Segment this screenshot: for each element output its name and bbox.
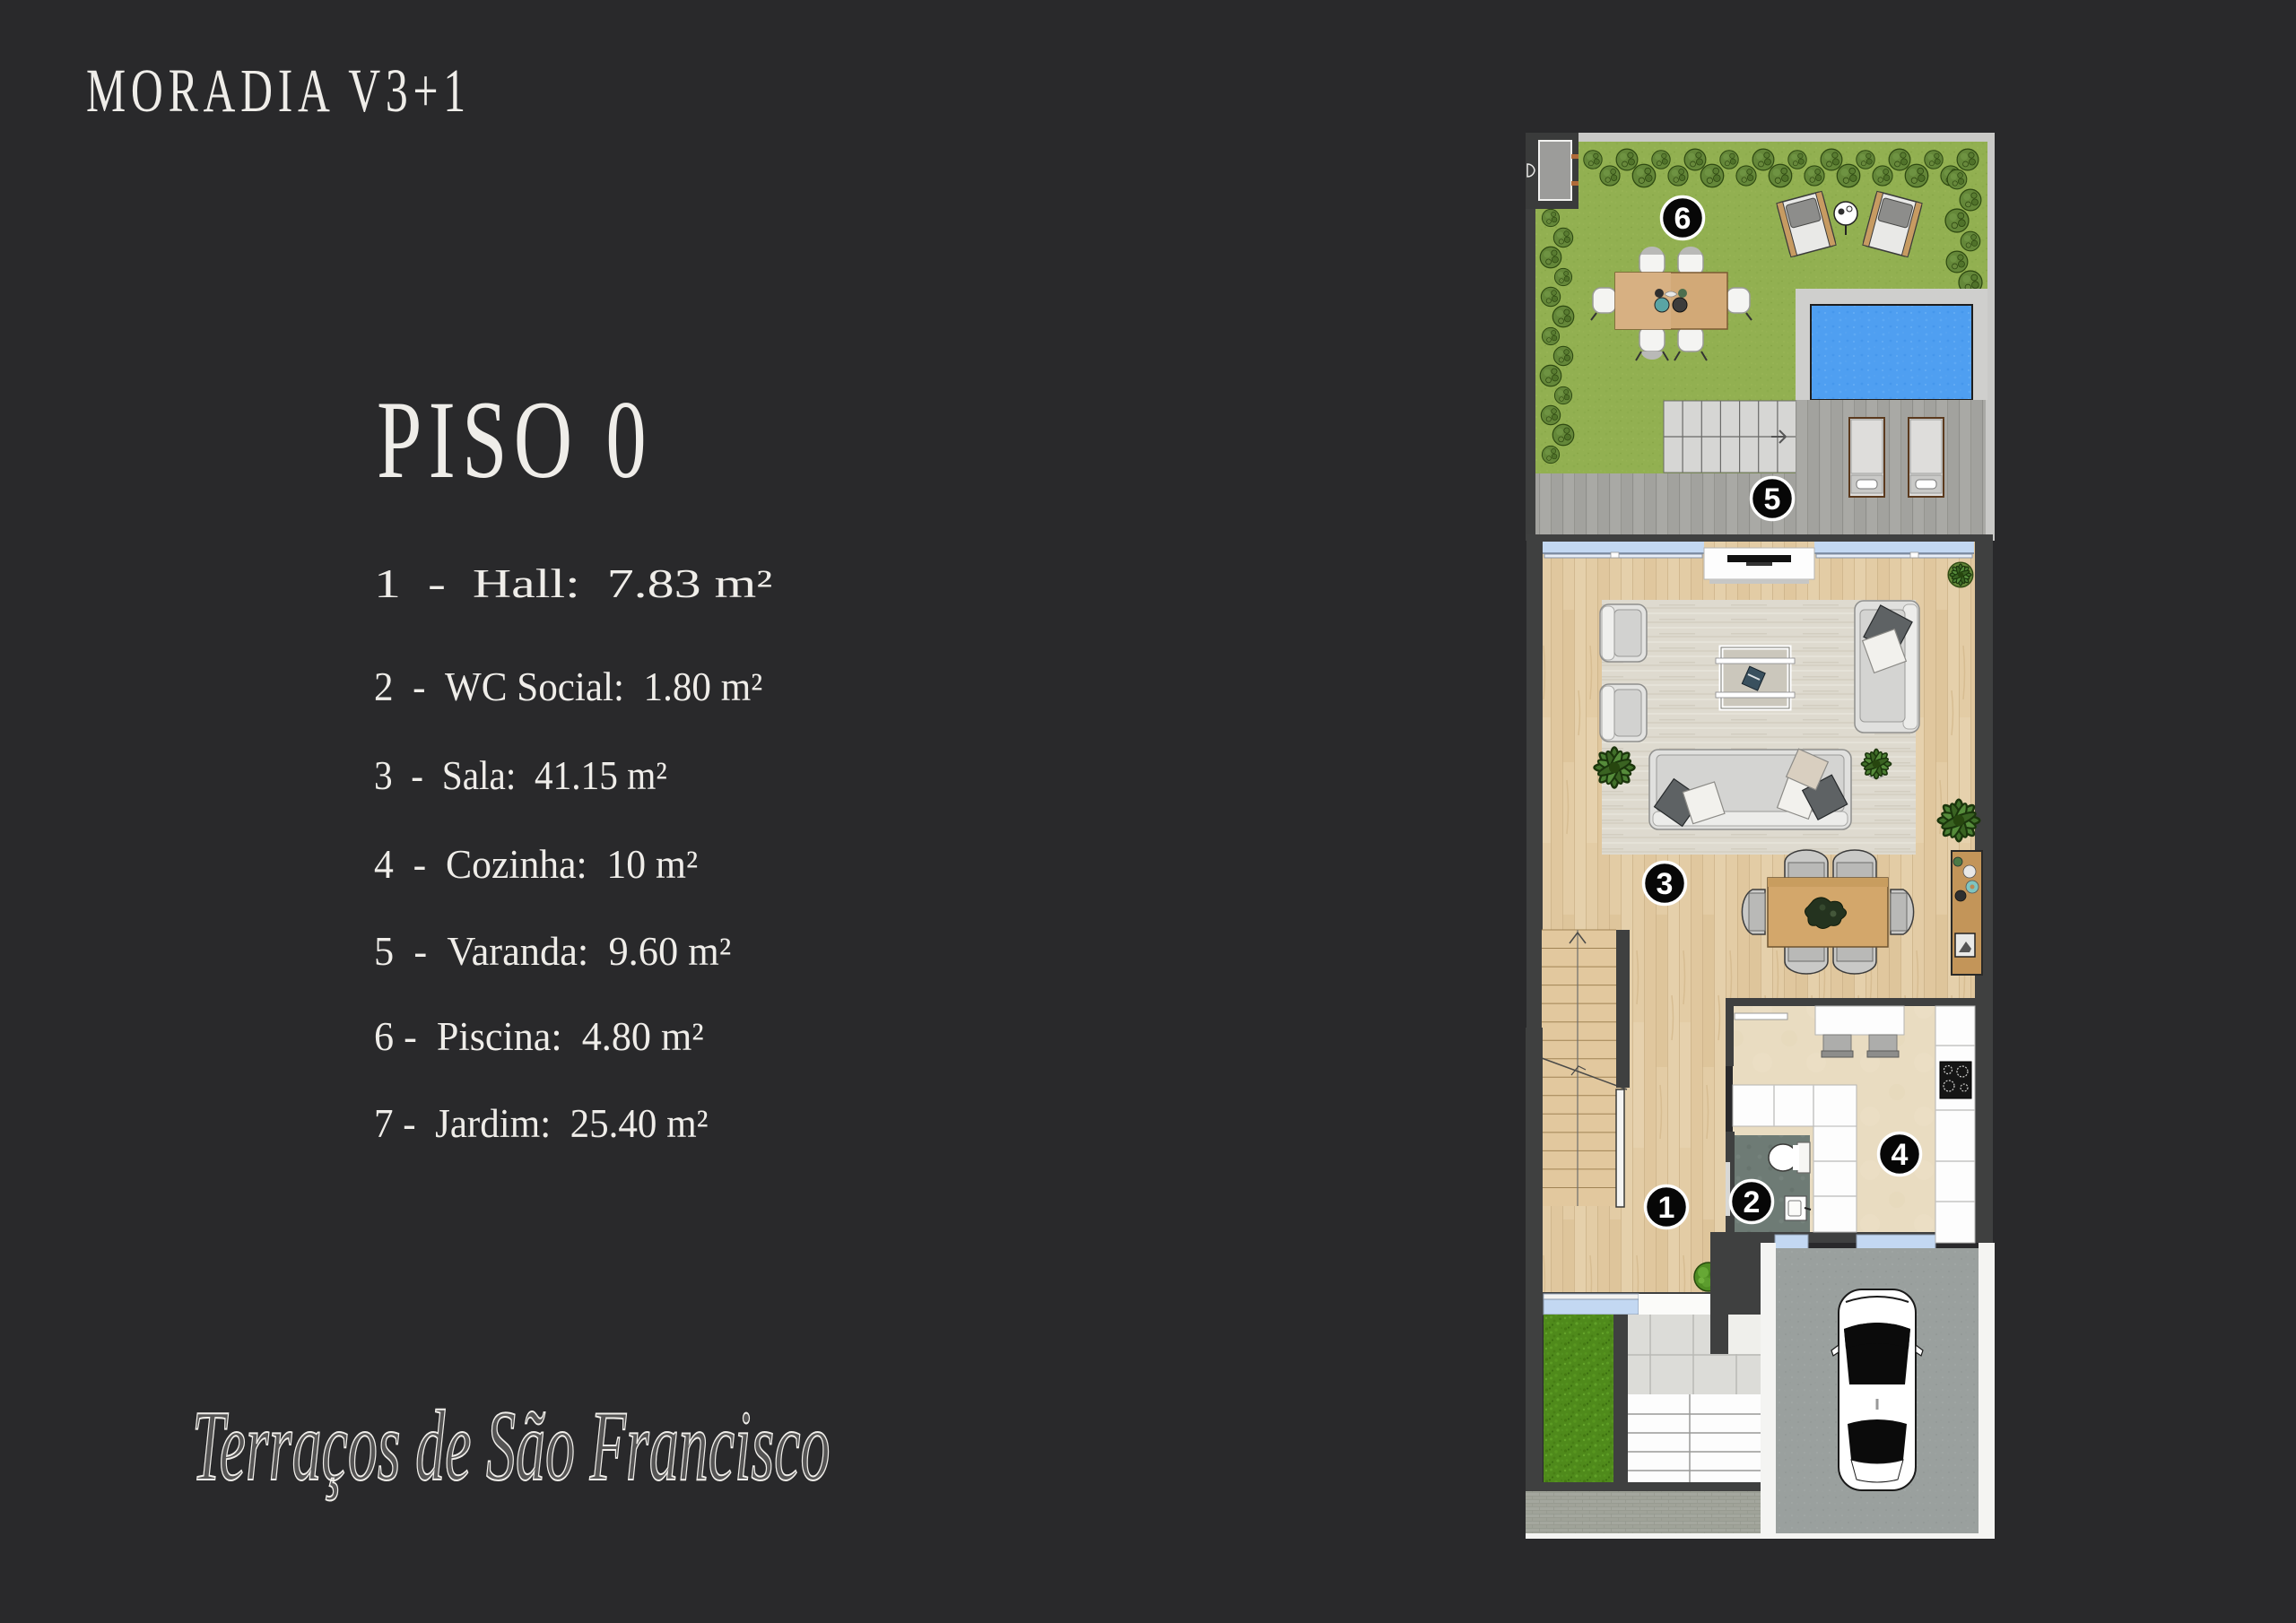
svg-text:3: 3 xyxy=(1657,867,1674,901)
svg-text:5: 5 xyxy=(1764,482,1781,516)
svg-text:6: 6 xyxy=(1674,202,1692,236)
svg-text:2: 2 xyxy=(1744,1185,1761,1219)
svg-text:1: 1 xyxy=(1658,1191,1675,1225)
svg-text:4: 4 xyxy=(1892,1138,1909,1172)
